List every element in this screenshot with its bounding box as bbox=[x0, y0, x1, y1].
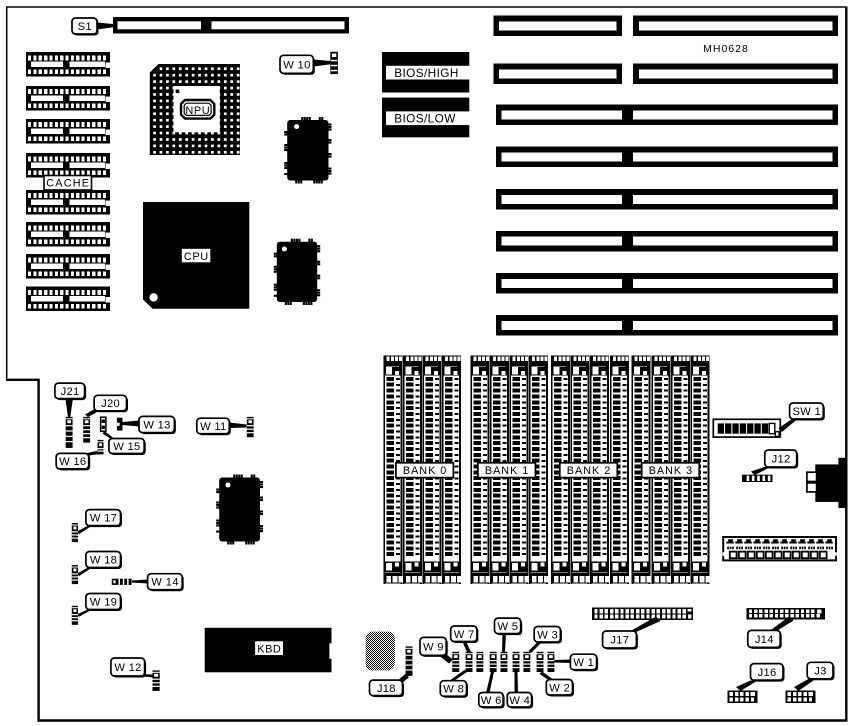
svg-text:W 13: W 13 bbox=[143, 420, 170, 432]
svg-text:BIOS/HIGH: BIOS/HIGH bbox=[394, 66, 459, 80]
svg-text:J17: J17 bbox=[610, 635, 629, 647]
svg-text:W 14: W 14 bbox=[151, 577, 179, 589]
svg-text:J21: J21 bbox=[61, 386, 80, 398]
svg-text:W 2: W 2 bbox=[549, 682, 570, 694]
svg-text:W 3: W 3 bbox=[537, 629, 558, 641]
svg-text:BANK 2: BANK 2 bbox=[567, 465, 611, 477]
svg-text:NPU: NPU bbox=[185, 105, 210, 117]
svg-text:W 15: W 15 bbox=[113, 441, 140, 453]
svg-text:BANK 1: BANK 1 bbox=[485, 465, 529, 477]
svg-text:J16: J16 bbox=[758, 667, 777, 679]
svg-text:W 1: W 1 bbox=[573, 657, 594, 669]
svg-text:S1: S1 bbox=[78, 21, 92, 33]
svg-text:W 17: W 17 bbox=[90, 513, 117, 525]
svg-text:W 7: W 7 bbox=[454, 629, 475, 641]
svg-text:W 5: W 5 bbox=[498, 621, 519, 633]
svg-text:W 11: W 11 bbox=[200, 421, 226, 433]
svg-text:SW 1: SW 1 bbox=[792, 406, 821, 418]
svg-text:W 19: W 19 bbox=[90, 597, 117, 609]
svg-text:J18: J18 bbox=[377, 683, 396, 695]
svg-text:W 4: W 4 bbox=[509, 695, 530, 707]
svg-text:W 9: W 9 bbox=[423, 641, 444, 653]
svg-text:W 8: W 8 bbox=[443, 683, 464, 695]
svg-text:J20: J20 bbox=[101, 398, 120, 410]
svg-text:W 16: W 16 bbox=[59, 456, 86, 468]
svg-text:CACHE: CACHE bbox=[46, 178, 90, 190]
svg-text:J12: J12 bbox=[772, 454, 791, 466]
svg-text:W 6: W 6 bbox=[481, 695, 502, 707]
svg-text:J14: J14 bbox=[755, 634, 774, 646]
svg-text:BIOS/LOW: BIOS/LOW bbox=[394, 111, 456, 125]
svg-text:J3: J3 bbox=[814, 666, 826, 678]
svg-text:W 18: W 18 bbox=[90, 555, 117, 567]
svg-text:BANK 3: BANK 3 bbox=[649, 465, 693, 477]
svg-text:W 12: W 12 bbox=[114, 662, 141, 674]
svg-text:BANK 0: BANK 0 bbox=[403, 465, 447, 477]
svg-text:MH0628: MH0628 bbox=[703, 43, 749, 55]
svg-text:W 10: W 10 bbox=[283, 59, 310, 71]
svg-text:CPU: CPU bbox=[184, 251, 209, 263]
svg-text:KBD: KBD bbox=[257, 643, 281, 655]
